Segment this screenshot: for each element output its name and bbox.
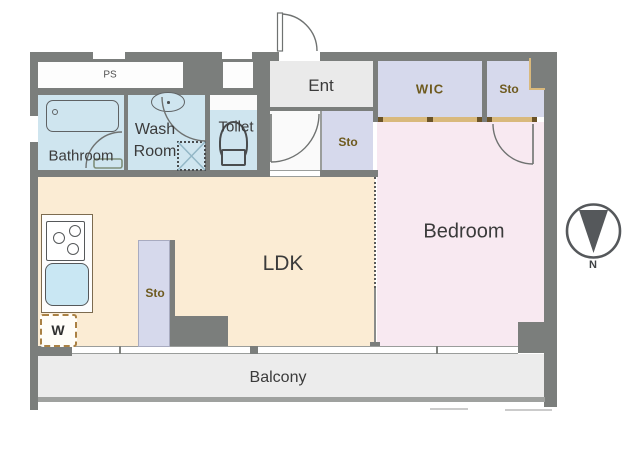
balcony-window-tick-2 <box>436 346 438 354</box>
sto-sliding-door-track <box>487 117 537 122</box>
north-arrow-icon <box>567 205 620 258</box>
scan-artifact-dashes <box>430 409 552 410</box>
sto-ldk-label: Sto <box>145 286 164 300</box>
sto-notch-trim-vertical <box>529 58 531 90</box>
left-wall <box>30 52 38 410</box>
stove-burner-1 <box>53 232 65 244</box>
ldk-bottom-left-wall <box>38 346 72 356</box>
ldk-bedroom-divider-dotted <box>374 177 376 288</box>
balcony-window-tick-1 <box>119 346 121 354</box>
entrance-door-gap <box>279 52 320 61</box>
sto-ldk-right-edge <box>170 240 175 347</box>
washbasin-drain <box>167 101 170 104</box>
toilet-shelf <box>210 95 257 110</box>
entrance-door-icon <box>278 13 318 51</box>
sto-hall-bottom-wall <box>320 170 378 177</box>
toilet-label: Toilet <box>218 119 253 136</box>
left-wall-window <box>30 116 38 142</box>
toilet-tank <box>221 149 246 166</box>
bedroom-label: Bedroom <box>423 221 504 244</box>
bottom-right-wall-block <box>518 322 545 353</box>
ldk-interior-wall-block <box>174 316 228 347</box>
balcony-edge <box>38 397 545 402</box>
washroom-machine-pan <box>177 141 206 171</box>
sto-track-tick-left <box>487 117 492 122</box>
right-wall <box>544 52 557 407</box>
balcony-label: Balcony <box>250 369 307 387</box>
wic-track-tick-right <box>477 117 482 122</box>
bathroom-label: Bathroom <box>48 148 113 165</box>
sto-track-tick-right <box>532 117 537 122</box>
washroom-label-line1: Wash <box>135 121 175 139</box>
wic-track-tick-mid <box>427 117 433 122</box>
ldk-bedroom-divider-solid <box>374 288 376 342</box>
meter-box <box>223 62 253 88</box>
top-right-wall-block <box>531 52 557 90</box>
ldk-label: LDK <box>263 252 304 276</box>
wic-track-tick-left <box>378 117 383 122</box>
top-wall-notch-right <box>222 52 252 59</box>
stove-burner-3 <box>67 243 79 255</box>
sto-hall-label: Sto <box>338 135 357 149</box>
sto-upper-right-label: Sto <box>499 82 518 96</box>
hall-ldk-opening-sill <box>270 170 320 177</box>
wet-area-bottom-wall <box>38 170 270 177</box>
kitchen-sink <box>45 263 89 306</box>
top-wall-notch-left <box>93 52 125 59</box>
ps-label: PS <box>103 70 116 81</box>
washroom-label-line2: Room <box>134 143 177 161</box>
wic-label: WIC <box>416 82 444 97</box>
north-label: N <box>589 259 597 271</box>
bath-wash-divider-wall <box>124 95 128 172</box>
hallway-floor <box>270 111 320 172</box>
washer-label: W <box>51 322 64 338</box>
ent-label: Ent <box>308 76 334 96</box>
sto-notch-trim-horizontal <box>529 88 545 90</box>
stove-burner-2 <box>69 225 81 237</box>
wic-sto-divider-wall <box>482 52 487 122</box>
ent-right-wall <box>373 52 378 122</box>
floor-plan: PS Bathroom Wash Room Toilet Ent WIC Sto… <box>0 0 640 474</box>
bathtub <box>46 100 119 132</box>
window-mid-stub <box>250 346 258 354</box>
hall-sto-divider <box>320 111 322 170</box>
balcony-window <box>72 346 518 354</box>
bathtub-drain <box>52 109 58 115</box>
